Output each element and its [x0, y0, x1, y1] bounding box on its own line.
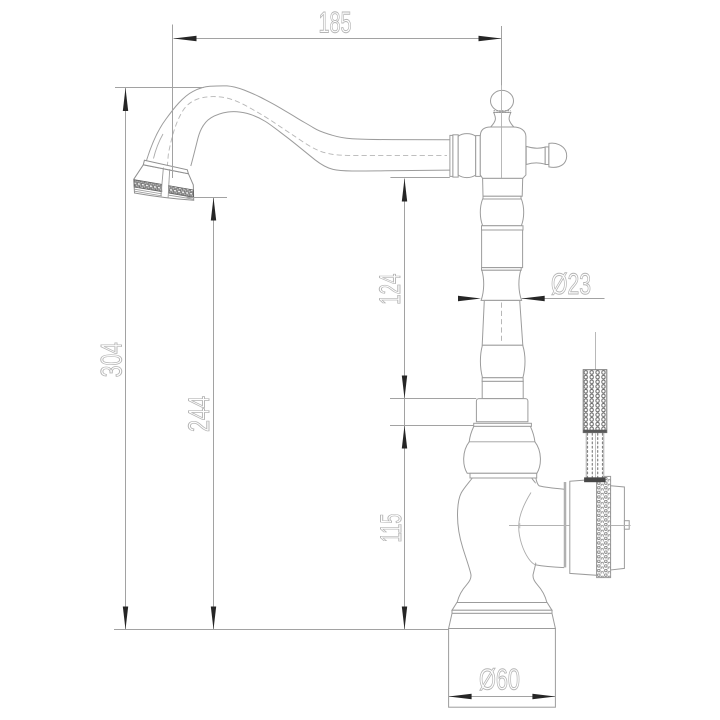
svg-text:185: 185: [319, 7, 352, 40]
svg-text:Ø23: Ø23: [551, 268, 591, 301]
svg-text:115: 115: [375, 514, 408, 543]
svg-text:304: 304: [96, 342, 129, 377]
svg-text:244: 244: [183, 396, 216, 432]
svg-text:Ø60: Ø60: [479, 664, 520, 697]
svg-text:124: 124: [374, 274, 407, 305]
